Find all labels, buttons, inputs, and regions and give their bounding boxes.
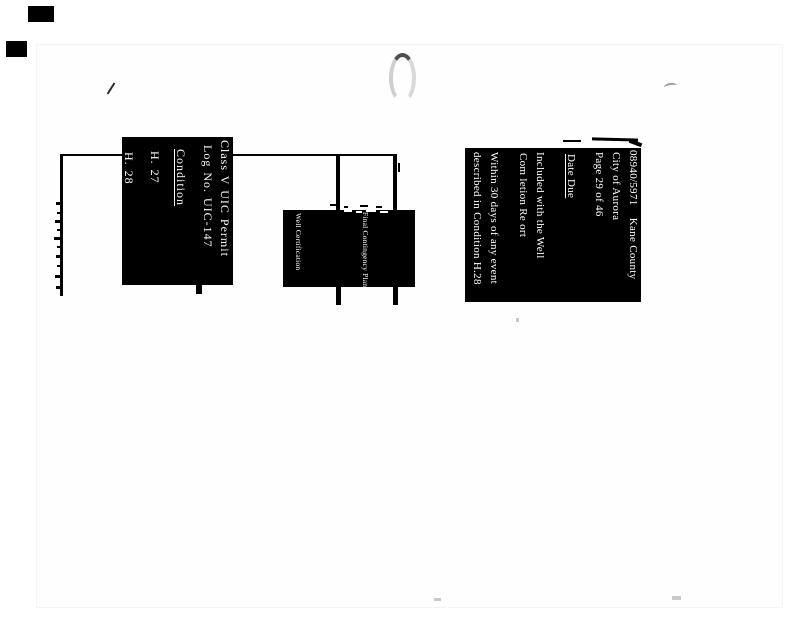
edge-scan-mark [6, 41, 27, 57]
condition-h27-label: H. 27 [148, 151, 161, 285]
scan-dash [330, 204, 338, 206]
requirement-cells-block: Final Contingency Plan Well Certificatio… [283, 210, 415, 287]
speck-mark [672, 596, 681, 600]
scan-notch [344, 210, 352, 212]
scan-tick [55, 275, 61, 278]
completion-report-line: Com letion Re ort [516, 153, 529, 302]
scan-tick [56, 202, 61, 205]
scan-tick [54, 237, 61, 240]
page-number-line: Page 29 of 46 [592, 152, 605, 302]
permit-class-line: Class V UIC Permit [218, 140, 231, 285]
scan-tick [57, 246, 61, 248]
table-rule-horizontal [233, 154, 397, 156]
scan-tick [57, 212, 61, 214]
scan-dash [376, 206, 382, 208]
table-rule-horizontal [62, 154, 126, 156]
speck-mark [434, 598, 441, 601]
scan-dash [563, 140, 581, 142]
table-rule-stub [336, 287, 341, 305]
described-condition-line: described in Condition H.28 [470, 152, 483, 302]
date-due-header-block: 08940/5971 Kane County City of Aurora Pa… [465, 148, 641, 302]
within-30-days-line: Within 30 days of any event [487, 152, 500, 302]
corner-scan-mark [28, 6, 54, 22]
scan-dash [344, 206, 348, 208]
scan-tick [56, 286, 61, 289]
included-with-well-line: Included with the Well [533, 152, 546, 302]
table-rule-vertical [336, 156, 340, 210]
paper-sheet-edge [36, 44, 783, 608]
table-rule-vertical [393, 154, 397, 210]
table-rule-stub [196, 285, 202, 294]
scan-tick [57, 265, 61, 267]
speck-mark [516, 318, 519, 322]
table-rule-stub [393, 287, 398, 305]
scan-tick [57, 229, 61, 231]
scan-tick [55, 220, 61, 223]
requirement-well-certification: Well Certification [294, 213, 303, 287]
city-line: City of Aurora [609, 152, 622, 302]
permit-condition-table-block: Class V UIC Permit Log No. UIC-147 Condi… [122, 137, 233, 285]
condition-column-header: Condition [174, 149, 187, 285]
permit-log-number: Log No. UIC-147 [201, 145, 214, 285]
punch-hole-mark [389, 53, 416, 103]
log-and-county-line: 08940/5971 Kane County [626, 150, 639, 302]
condition-h28-label: H. 28 [122, 152, 135, 285]
scan-tick [56, 255, 61, 258]
scanned-document-page: Class V UIC Permit Log No. UIC-147 Condi… [0, 0, 800, 618]
table-rule-tick [398, 163, 400, 172]
scan-notch [380, 211, 388, 213]
requirement-contingency-plan: Final Contingency Plan [361, 212, 370, 287]
scan-dash [360, 205, 368, 207]
scan-notch [356, 211, 362, 213]
scan-notch [366, 210, 376, 212]
date-due-heading: Date Due [564, 154, 577, 302]
